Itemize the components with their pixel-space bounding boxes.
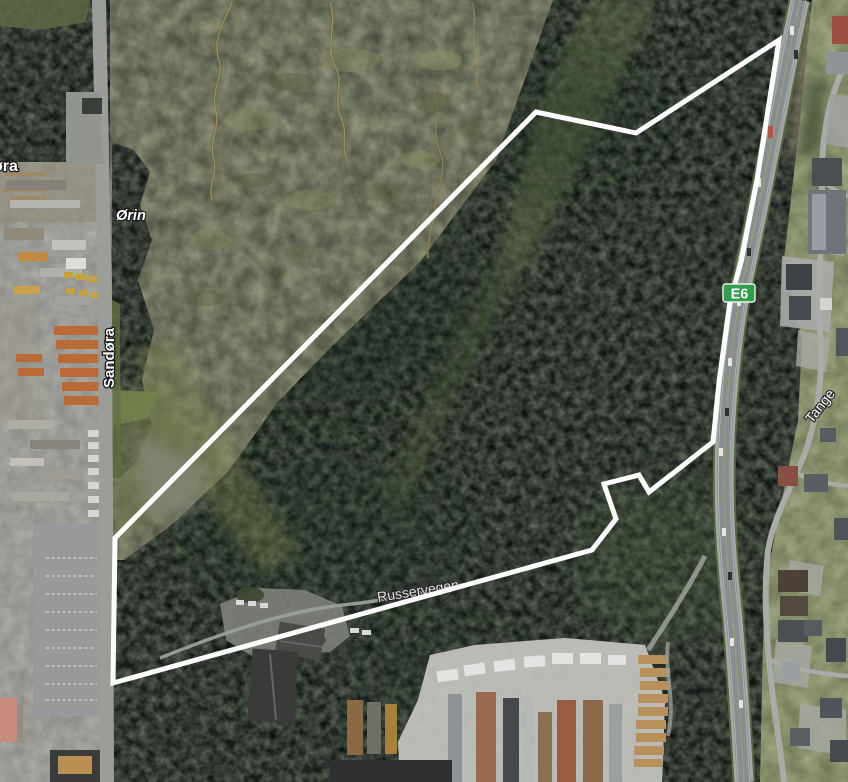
svg-text:øra: øra bbox=[0, 158, 18, 175]
svg-text:E6: E6 bbox=[731, 287, 749, 303]
svg-text:Sandøra: Sandøra bbox=[101, 327, 118, 388]
svg-text:Ørin: Ørin bbox=[116, 208, 146, 224]
